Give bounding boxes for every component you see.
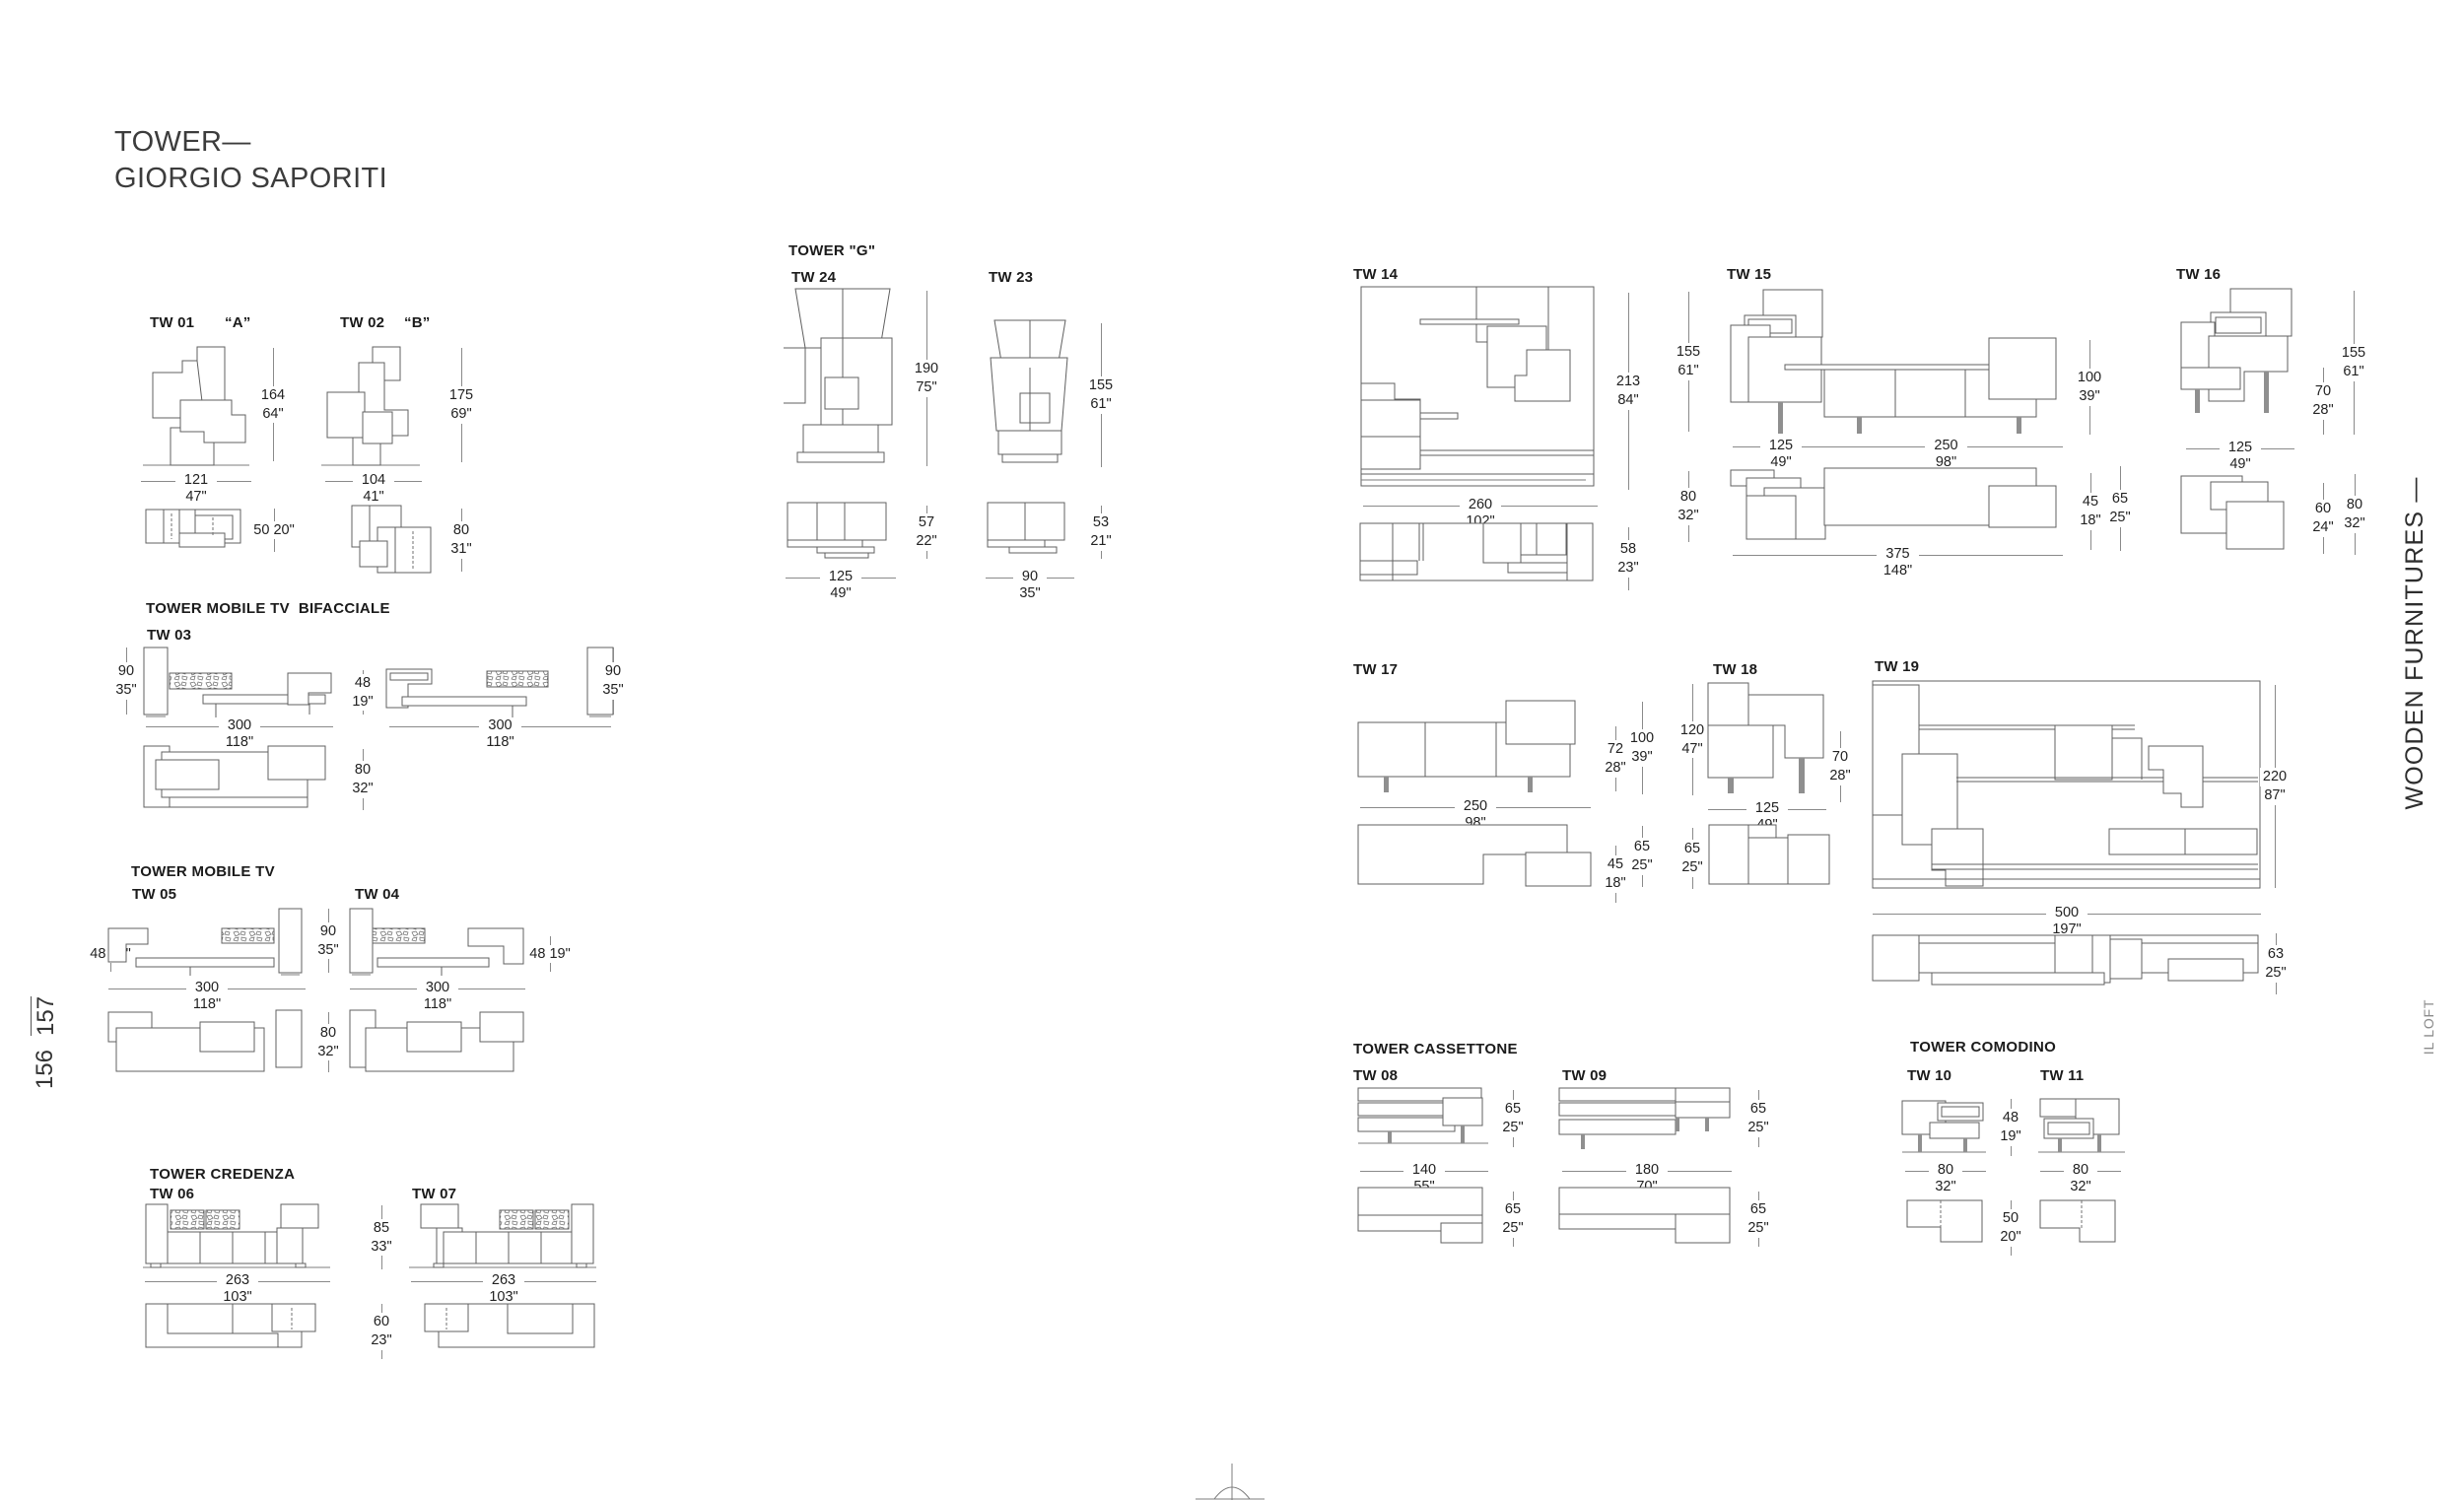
drawing-tw15-front <box>1731 286 2064 436</box>
dim-tw01-plan: 50 20" <box>246 509 302 552</box>
dim-tw18-depth: 6525" <box>1670 828 1715 889</box>
drawing-tw15-plan <box>1731 466 2064 543</box>
drawing-tw11-plan <box>2038 1198 2117 1248</box>
dim-tw45-height: 9035" <box>306 909 351 973</box>
dim-tw15-height3: 8032" <box>1666 471 1711 542</box>
drawing-tw03-left-view <box>142 646 335 720</box>
dim-tw45-plan: 8032" <box>306 1012 351 1072</box>
drawing-tw24-front <box>784 287 902 468</box>
brand-il-loft: IL LOFT <box>2417 988 2440 1066</box>
dim-tw08-depth: 6525" <box>1490 1192 1536 1247</box>
model-label-tw02: TW 02 <box>340 314 384 331</box>
dim-tw18-height2: 7028" <box>1817 731 1863 802</box>
model-label-tw06: TW 06 <box>150 1186 194 1202</box>
model-label-tw03: TW 03 <box>147 627 191 644</box>
drawing-tw16-plan <box>2181 474 2293 553</box>
dim-tw24-height: 19075" <box>904 291 949 466</box>
drawing-tw16-front <box>2181 287 2293 437</box>
dim-tw67-plan: 6023" <box>359 1304 404 1359</box>
dim-tw02-plan-depth: 8031" <box>439 509 484 572</box>
dim-tw1011-plan: 5020" <box>1988 1200 2033 1256</box>
dim-tw19-depth: 6325" <box>2253 933 2298 994</box>
page-title-line1: TOWER— <box>114 124 387 161</box>
drawing-tw18-front <box>1708 681 1830 795</box>
dim-tw11-width: 8032" <box>2040 1162 2121 1194</box>
dim-tw15-depth2: 6525" <box>2097 466 2143 551</box>
heading-comodino: TOWER COMODINO <box>1910 1039 2056 1056</box>
heading-cassettone: TOWER CASSETTONE <box>1353 1041 1518 1057</box>
dim-tw16-height: 15561" <box>2331 291 2376 435</box>
drawing-tw06-plan <box>144 1302 331 1355</box>
page-numbers: 156 157 <box>25 984 66 1102</box>
page-number-right: 157 <box>31 996 60 1036</box>
heading-bifacciale: TOWER MOBILE TV BIFACCIALE <box>146 600 390 617</box>
dim-tw67-height: 8533" <box>359 1205 404 1269</box>
dim-tw02-height: 17569" <box>439 348 484 462</box>
model-label-tw10: TW 10 <box>1907 1067 1951 1084</box>
model-label-tw19: TW 19 <box>1875 658 1919 675</box>
model-label-tw17: TW 17 <box>1353 661 1398 678</box>
dim-tw09-depth: 6525" <box>1736 1192 1781 1247</box>
drawing-tw10-front <box>1902 1097 1986 1156</box>
dim-tw16-width: 12549" <box>2186 440 2294 472</box>
dim-tw24-plan-width: 12549" <box>786 569 896 601</box>
variant-label-b: “B” <box>404 314 430 331</box>
heading-credenza: TOWER CREDENZA <box>150 1166 295 1183</box>
drawing-tw08-plan <box>1358 1186 1488 1247</box>
page-title-line2: GIORGIO SAPORITI <box>114 161 387 197</box>
model-label-tw07: TW 07 <box>412 1186 456 1202</box>
model-label-tw05: TW 05 <box>132 886 176 903</box>
dim-tw16-plan-depth2: 8032" <box>2332 474 2377 555</box>
dim-tw03-plan-height: 8032" <box>340 749 385 810</box>
dim-tw1011-height: 4819" <box>1988 1099 2033 1156</box>
drawing-tw02-front <box>321 343 422 469</box>
dim-tw03-height-left: 9035" <box>103 648 149 715</box>
dim-tw24-plan-depth: 5722" <box>904 506 949 559</box>
dim-tw23-height: 15561" <box>1078 323 1124 467</box>
model-label-tw14: TW 14 <box>1353 266 1398 283</box>
drawing-tw23-front <box>987 318 1073 468</box>
drawing-tw14-front <box>1361 287 1598 492</box>
drawing-tw14-plan <box>1360 523 1597 592</box>
drawing-tw01-plan <box>144 508 244 551</box>
drawing-tw07-view <box>409 1202 596 1271</box>
drawing-tw17-front <box>1358 698 1591 793</box>
dim-tw03-height-mid: 4819" <box>340 670 385 715</box>
model-label-tw01: TW 01 <box>150 314 194 331</box>
compass-symbol <box>1193 1464 1271 1500</box>
side-text-wooden-furnitures: WOODEN FURNITURES — <box>2393 498 2437 788</box>
drawing-tw04-plan <box>348 1010 525 1075</box>
drawing-tw18-plan <box>1709 823 1831 888</box>
dim-tw07-width: 263103" <box>411 1272 596 1305</box>
drawing-tw07-plan <box>409 1302 596 1355</box>
drawing-tw24-plan <box>786 501 899 562</box>
drawing-tw04-view <box>348 907 525 976</box>
model-label-tw15: TW 15 <box>1727 266 1771 283</box>
dim-tw04-side: 48 19" <box>522 936 578 972</box>
drawing-tw03-plan <box>142 744 335 811</box>
dim-tw06-width: 263103" <box>145 1272 330 1305</box>
dim-tw02-width: 10441" <box>325 472 422 505</box>
heading-mobiletv: TOWER MOBILE TV <box>131 863 275 880</box>
dim-tw01-width: 12147" <box>141 472 251 505</box>
drawing-tw05-plan <box>106 1010 304 1075</box>
dim-tw23-plan-width: 9035" <box>986 569 1074 601</box>
page-number-left: 156 <box>32 1050 59 1089</box>
dim-tw17-depth2: 6525" <box>1619 826 1665 887</box>
drawing-tw02-plan <box>350 504 437 575</box>
drawing-tw19-plan <box>1873 931 2261 996</box>
model-label-tw16: TW 16 <box>2176 266 2221 283</box>
dim-tw14-height: 21384" <box>1606 293 1651 490</box>
drawing-tw03-right-view <box>384 646 617 720</box>
heading-tower-g: TOWER "G" <box>788 242 875 259</box>
model-label-tw23: TW 23 <box>989 269 1033 286</box>
dim-tw17-height2: 10039" <box>1619 702 1665 794</box>
dim-tw23-plan-depth: 5321" <box>1078 506 1124 559</box>
page-title: TOWER— GIORGIO SAPORITI <box>114 124 387 197</box>
dim-tw10-width: 8032" <box>1905 1162 1986 1194</box>
dim-tw09-height: 6525" <box>1736 1090 1781 1147</box>
drawing-tw17-plan <box>1358 823 1591 890</box>
variant-label-a: “A” <box>225 314 250 331</box>
model-label-tw11: TW 11 <box>2040 1067 2084 1084</box>
drawing-tw10-plan <box>1905 1198 1986 1248</box>
dim-tw01-height: 16464" <box>250 348 296 461</box>
drawing-tw01-front <box>141 343 251 469</box>
drawing-tw05-view <box>106 907 304 976</box>
model-label-tw09: TW 09 <box>1562 1067 1607 1084</box>
drawing-tw23-plan <box>986 501 1072 560</box>
dim-tw19-height: 22087" <box>2252 685 2297 888</box>
drawing-tw09-front <box>1559 1086 1733 1153</box>
drawing-tw11-front <box>2038 1097 2127 1156</box>
model-label-tw08: TW 08 <box>1353 1067 1398 1084</box>
dim-tw03-height-right: 9035" <box>590 648 636 715</box>
dim-tw14-depth: 5823" <box>1606 527 1651 590</box>
drawing-tw19-front <box>1873 681 2262 894</box>
dim-tw15-total-width: 375148" <box>1733 546 2063 579</box>
dim-tw15-height1: 15561" <box>1666 292 1711 432</box>
dim-tw04-width: 300118" <box>350 980 525 1012</box>
model-label-tw24: TW 24 <box>791 269 836 286</box>
drawing-tw08-front <box>1358 1086 1488 1149</box>
drawing-tw06-view <box>143 1202 330 1271</box>
dim-tw05-width: 300118" <box>108 980 306 1012</box>
dim-tw08-height: 6525" <box>1490 1090 1536 1147</box>
model-label-tw18: TW 18 <box>1713 661 1757 678</box>
drawing-tw09-plan <box>1559 1186 1733 1247</box>
dim-tw15-height2: 10039" <box>2067 340 2112 435</box>
dim-tw03-width-right: 300118" <box>389 717 611 750</box>
model-label-tw04: TW 04 <box>355 886 399 903</box>
